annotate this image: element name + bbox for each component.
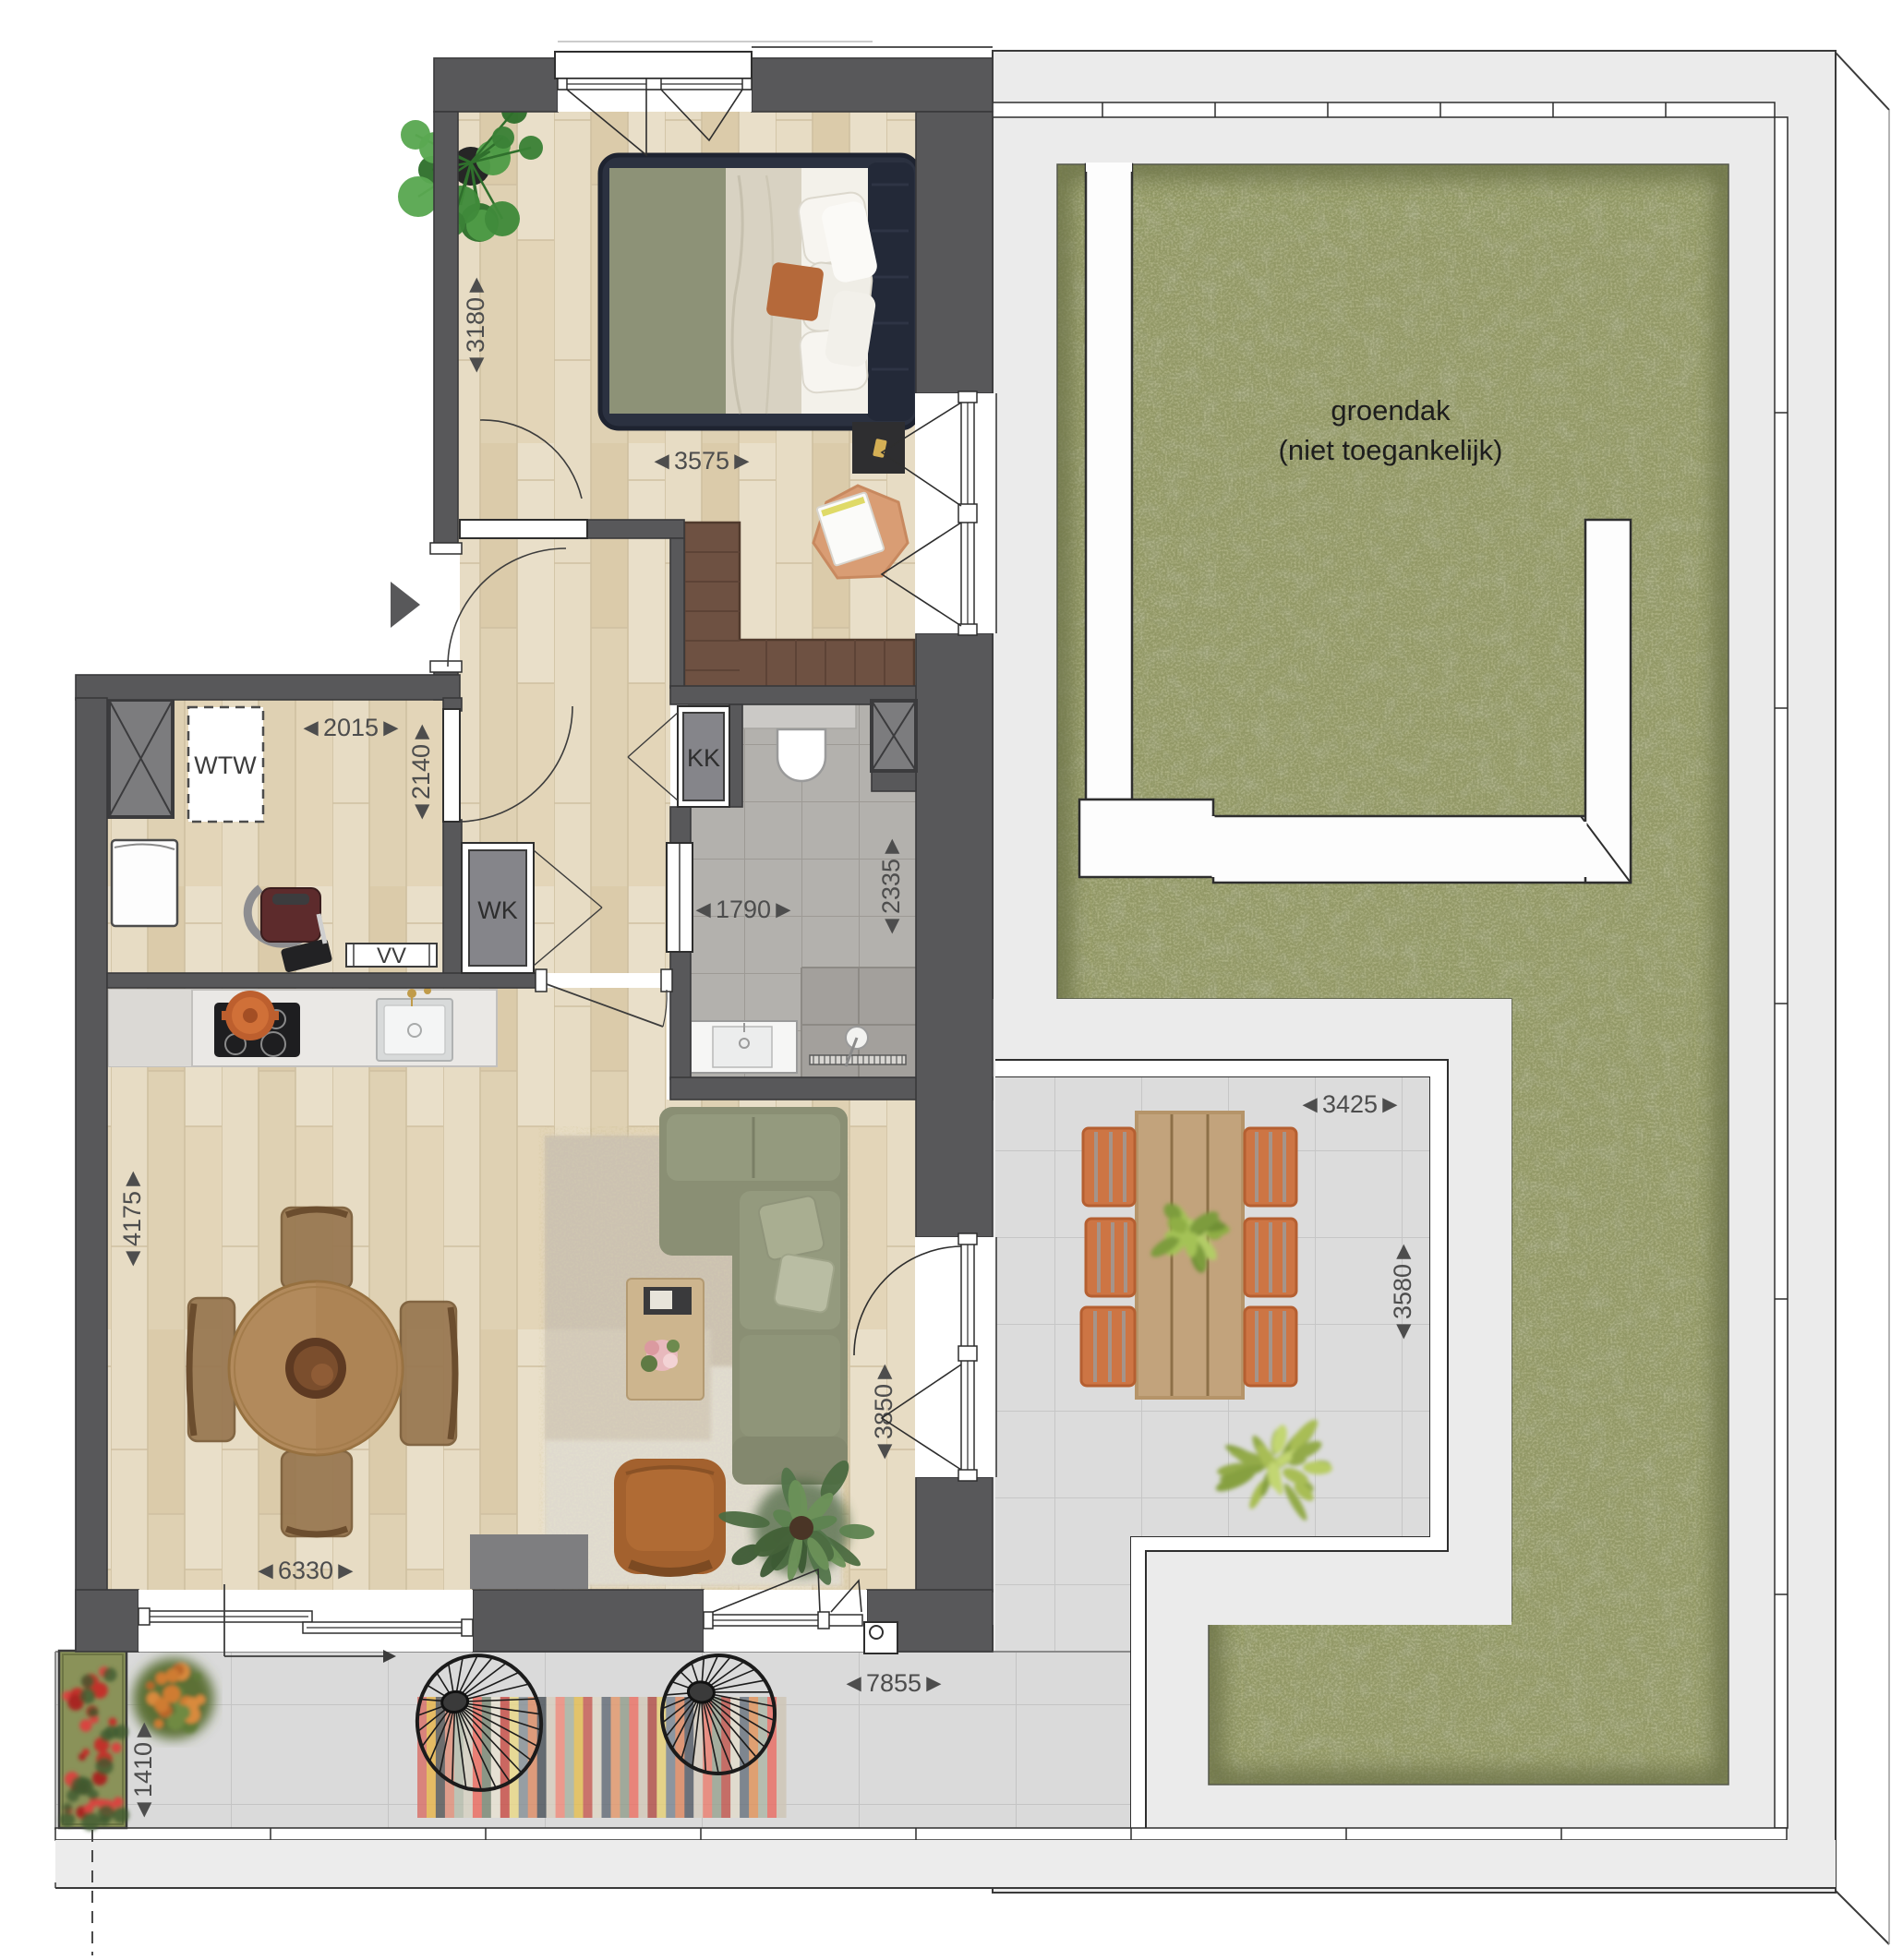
svg-text:◄2140►: ◄2140► bbox=[407, 719, 435, 824]
svg-text:◄1410►: ◄1410► bbox=[129, 1717, 157, 1822]
svg-text:◄2015►: ◄2015► bbox=[298, 714, 403, 741]
svg-text:◄4175►: ◄4175► bbox=[118, 1166, 146, 1271]
svg-text:◄3580►: ◄3580► bbox=[1389, 1239, 1416, 1344]
svg-text:◄3850►: ◄3850► bbox=[870, 1359, 897, 1464]
svg-text:groendak: groendak bbox=[1331, 394, 1451, 427]
svg-text:◄6330►: ◄6330► bbox=[253, 1557, 358, 1584]
svg-text:◄3575►: ◄3575► bbox=[649, 447, 754, 475]
svg-text:◄3180►: ◄3180► bbox=[462, 272, 489, 378]
svg-text:◄7855►: ◄7855► bbox=[841, 1669, 946, 1697]
svg-text:◄3425►: ◄3425► bbox=[1297, 1090, 1403, 1118]
svg-text:(niet toegankelijk): (niet toegankelijk) bbox=[1279, 434, 1503, 466]
svg-text:KK: KK bbox=[687, 744, 720, 772]
svg-text:◄1790►: ◄1790► bbox=[691, 896, 796, 923]
svg-text:WTW: WTW bbox=[194, 752, 257, 779]
svg-text:◄2335►: ◄2335► bbox=[877, 834, 905, 939]
svg-text:VV: VV bbox=[377, 944, 406, 968]
svg-text:WK: WK bbox=[477, 896, 518, 924]
